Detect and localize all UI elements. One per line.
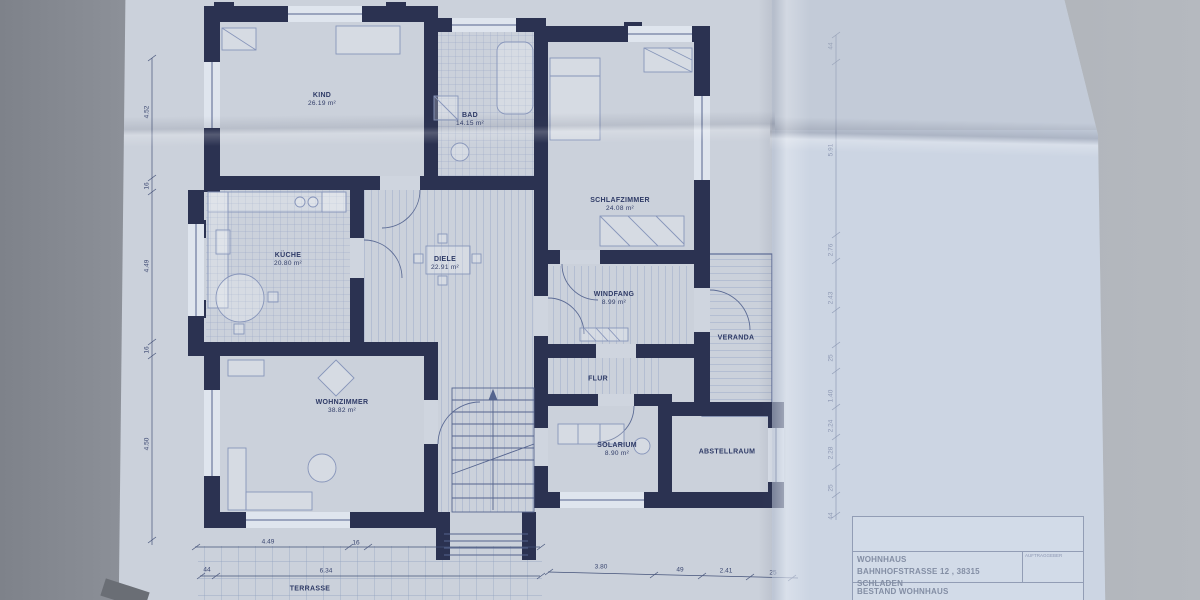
room-area: 24.08 m² [550,205,690,213]
room-name: WINDFANG [544,290,684,299]
room-label-windfang: WINDFANG 8.99 m² [544,290,684,308]
room-name: KIND [252,91,392,100]
room-area: 26.19 m² [252,100,392,108]
dim-label: 16 [144,182,151,189]
dim-label: 3.80 [595,564,608,571]
dim-label: 44 [203,567,210,574]
dim-label: 6.34 [320,568,333,575]
horizontal-crease [120,111,775,147]
room-label-wohnzimmer: WOHNZIMMER 38.82 m² [272,398,412,416]
photo-of-floor-plan: KIND 26.19 m² BAD 14.15 m² SCHLAFZIMMER … [0,0,1200,600]
vertical-crease [758,0,810,600]
room-name: FLUR [528,374,668,383]
dim-label: 2.41 [720,568,733,575]
room-name: KÜCHE [218,251,358,260]
room-name: SCHLAFZIMMER [550,196,690,205]
room-label-terrasse: TERRASSE [240,584,380,593]
room-label-diele: DIELE 22.91 m² [375,255,515,273]
dim-label: 16 [352,540,359,547]
horizontal-crease-right [770,117,1101,158]
dim-label: 4.49 [262,539,275,546]
room-label-kueche: KÜCHE 20.80 m² [218,251,358,269]
room-label-flur: FLUR [528,374,668,383]
room-area: 22.91 m² [375,264,515,272]
dim-label: 4.50 [144,438,151,451]
room-area: 38.82 m² [272,407,412,415]
dim-label: 16 [144,346,151,353]
paper: KIND 26.19 m² BAD 14.15 m² SCHLAFZIMMER … [0,0,1200,600]
dim-label: 4.49 [144,260,151,273]
dim-label: 49 [676,567,683,574]
room-name: WOHNZIMMER [272,398,412,407]
room-label-kind: KIND 26.19 m² [252,91,392,109]
room-name: TERRASSE [240,584,380,593]
paper-fold-tint-top [772,0,1112,130]
room-area: 8.99 m² [544,299,684,307]
room-name: DIELE [375,255,515,264]
room-area: 20.80 m² [218,260,358,268]
room-label-schlafzimmer: SCHLAFZIMMER 24.08 m² [550,196,690,214]
